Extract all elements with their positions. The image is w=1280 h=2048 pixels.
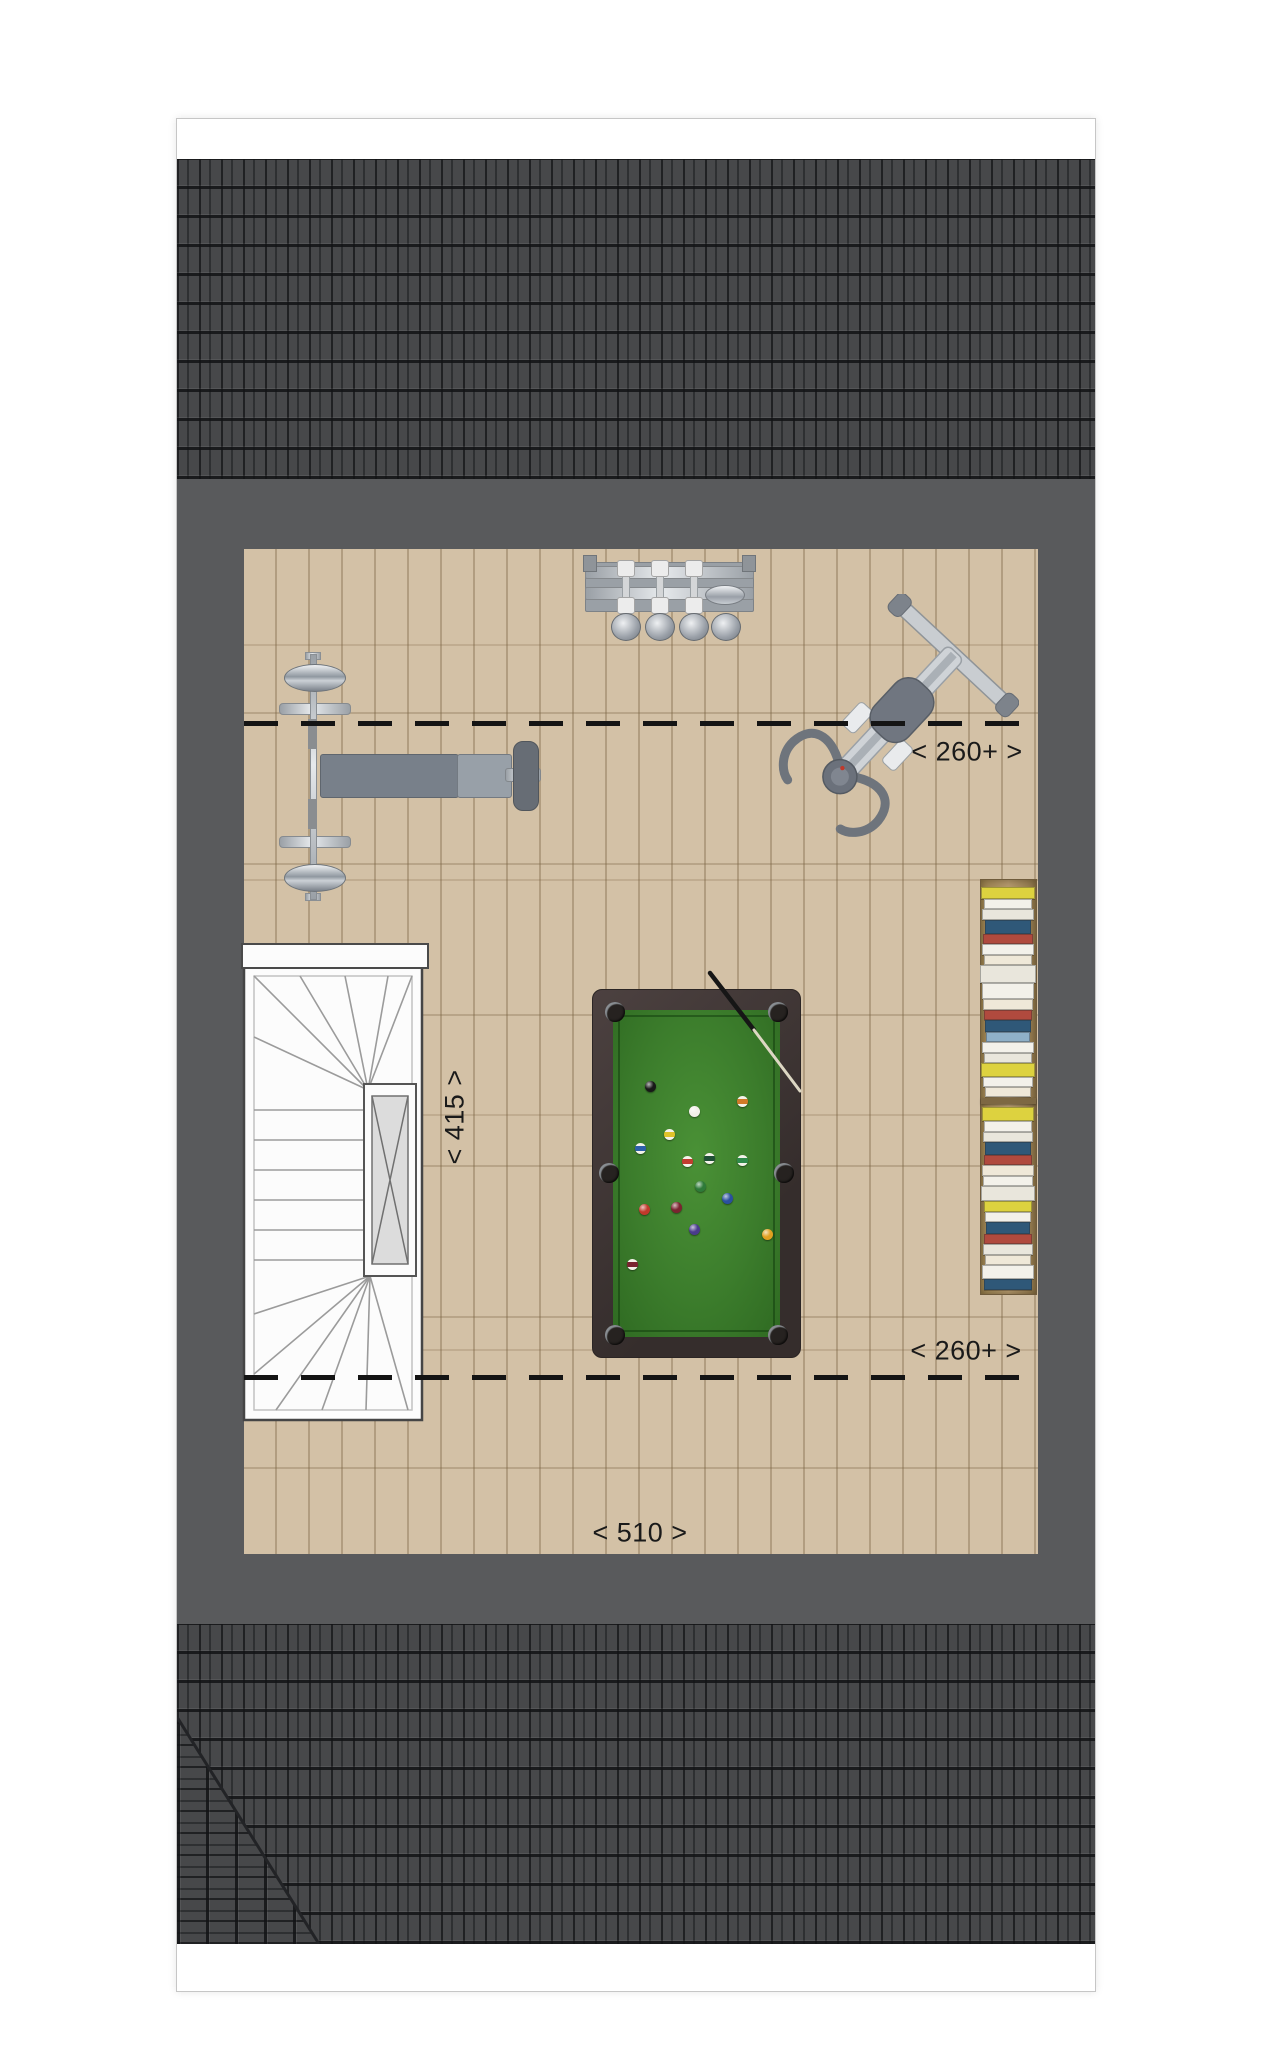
weight-plate-top xyxy=(284,664,346,692)
pocket-mid-left xyxy=(599,1163,619,1183)
book-spine xyxy=(981,887,1035,899)
book-spine xyxy=(983,1244,1033,1255)
dumbbell xyxy=(617,597,635,614)
pool-ball xyxy=(762,1229,773,1240)
dimension-headroom-top: < 260+ > xyxy=(911,737,1022,768)
rack-bracket xyxy=(583,555,597,572)
pool-ball xyxy=(704,1153,715,1164)
book-spine xyxy=(982,1042,1034,1053)
book-spine xyxy=(982,909,1034,920)
book-spine xyxy=(986,1222,1030,1234)
book-spine xyxy=(984,1279,1032,1290)
weight-disc xyxy=(611,613,641,641)
shelf-divider xyxy=(981,1098,1036,1104)
dumbbell xyxy=(685,560,703,577)
pool-ball xyxy=(671,1202,682,1213)
pocket-bottom-left xyxy=(605,1325,625,1345)
book-spine xyxy=(986,1032,1030,1042)
book-spine xyxy=(984,1053,1032,1063)
roof-hip-line xyxy=(177,1624,377,1944)
rack-bracket xyxy=(742,555,756,572)
pool-ball xyxy=(645,1081,656,1092)
book-spine xyxy=(984,1201,1032,1212)
pool-ball xyxy=(664,1129,675,1140)
book-spine xyxy=(984,899,1032,909)
book-spine xyxy=(982,983,1034,999)
weight-disc xyxy=(711,613,741,641)
book-spine xyxy=(985,1087,1031,1097)
cue-stick xyxy=(697,959,817,1104)
bench-roller xyxy=(513,741,539,811)
roof-tiles-top xyxy=(177,159,1095,479)
pool-ball xyxy=(639,1204,650,1215)
weight-disc xyxy=(679,613,709,641)
dumbbell xyxy=(651,597,669,614)
dimension-room-width: < 415 > xyxy=(440,1069,471,1164)
book-spine xyxy=(985,920,1031,934)
book-spine xyxy=(985,1255,1031,1265)
book-spine xyxy=(984,1234,1032,1244)
weight-plate-bottom xyxy=(284,864,346,892)
roof-tiles-bottom xyxy=(177,1624,1095,1944)
pool-ball xyxy=(737,1155,748,1166)
pocket-mid-right xyxy=(774,1163,794,1183)
floorplan-page: < 260+ > < 260+ > < 415 > < 510 > xyxy=(176,118,1096,1992)
spiral-staircase xyxy=(240,942,430,1424)
book-spine xyxy=(982,1165,1034,1176)
book-spine xyxy=(981,1186,1035,1201)
dumbbell xyxy=(685,597,703,614)
pool-ball xyxy=(722,1193,733,1204)
book-spine xyxy=(984,1010,1032,1020)
pocket-top-left xyxy=(605,1002,625,1022)
dimension-room-depth: < 510 > xyxy=(592,1518,687,1549)
book-spine xyxy=(982,1107,1034,1121)
rack-rail xyxy=(585,566,754,579)
book-spine xyxy=(983,1132,1033,1142)
dumbbell xyxy=(651,560,669,577)
weight-disc xyxy=(645,613,675,641)
bench-pad xyxy=(320,754,459,798)
book-spine xyxy=(980,965,1036,983)
cue-shaft xyxy=(754,1030,800,1091)
bench-head-pad xyxy=(457,754,512,798)
pocket-bottom-right xyxy=(768,1325,788,1345)
weight-disc-flat xyxy=(705,585,745,605)
book-spine xyxy=(985,1142,1031,1155)
book-spine xyxy=(984,1155,1032,1165)
pool-ball xyxy=(627,1259,638,1270)
cue-butt xyxy=(710,973,754,1030)
book-spine xyxy=(983,1176,1033,1186)
book-spine xyxy=(984,1121,1032,1132)
book-spine xyxy=(982,1265,1034,1279)
pool-ball xyxy=(689,1106,700,1117)
book-spine xyxy=(984,955,1032,965)
pool-ball xyxy=(682,1156,693,1167)
headroom-dashed-line-top xyxy=(244,721,1038,726)
barbell-sleeve xyxy=(308,799,317,829)
book-spine xyxy=(981,1063,1035,1077)
book-spine xyxy=(985,1212,1031,1222)
dumbbell xyxy=(617,560,635,577)
pool-ball xyxy=(689,1224,700,1235)
pool-ball xyxy=(695,1181,706,1192)
book-spine xyxy=(983,999,1033,1010)
stair-top-cap xyxy=(242,944,428,968)
dimension-headroom-bottom: < 260+ > xyxy=(910,1336,1021,1367)
book-spine xyxy=(982,944,1034,955)
book-spine xyxy=(983,1077,1033,1087)
headroom-dashed-line-bottom xyxy=(244,1375,1038,1380)
book-spine xyxy=(985,1020,1031,1032)
pool-ball xyxy=(635,1143,646,1154)
book-spine xyxy=(983,934,1033,944)
